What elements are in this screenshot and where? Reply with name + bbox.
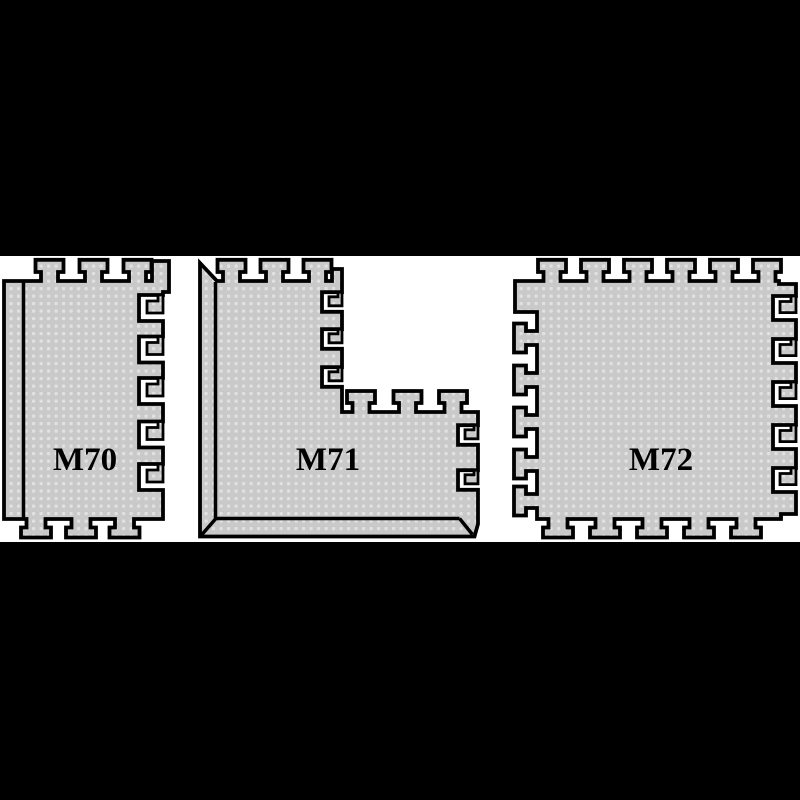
svg-text:M72: M72	[629, 442, 693, 478]
svg-text:M71: M71	[296, 442, 360, 478]
svg-text:M70: M70	[53, 442, 117, 478]
